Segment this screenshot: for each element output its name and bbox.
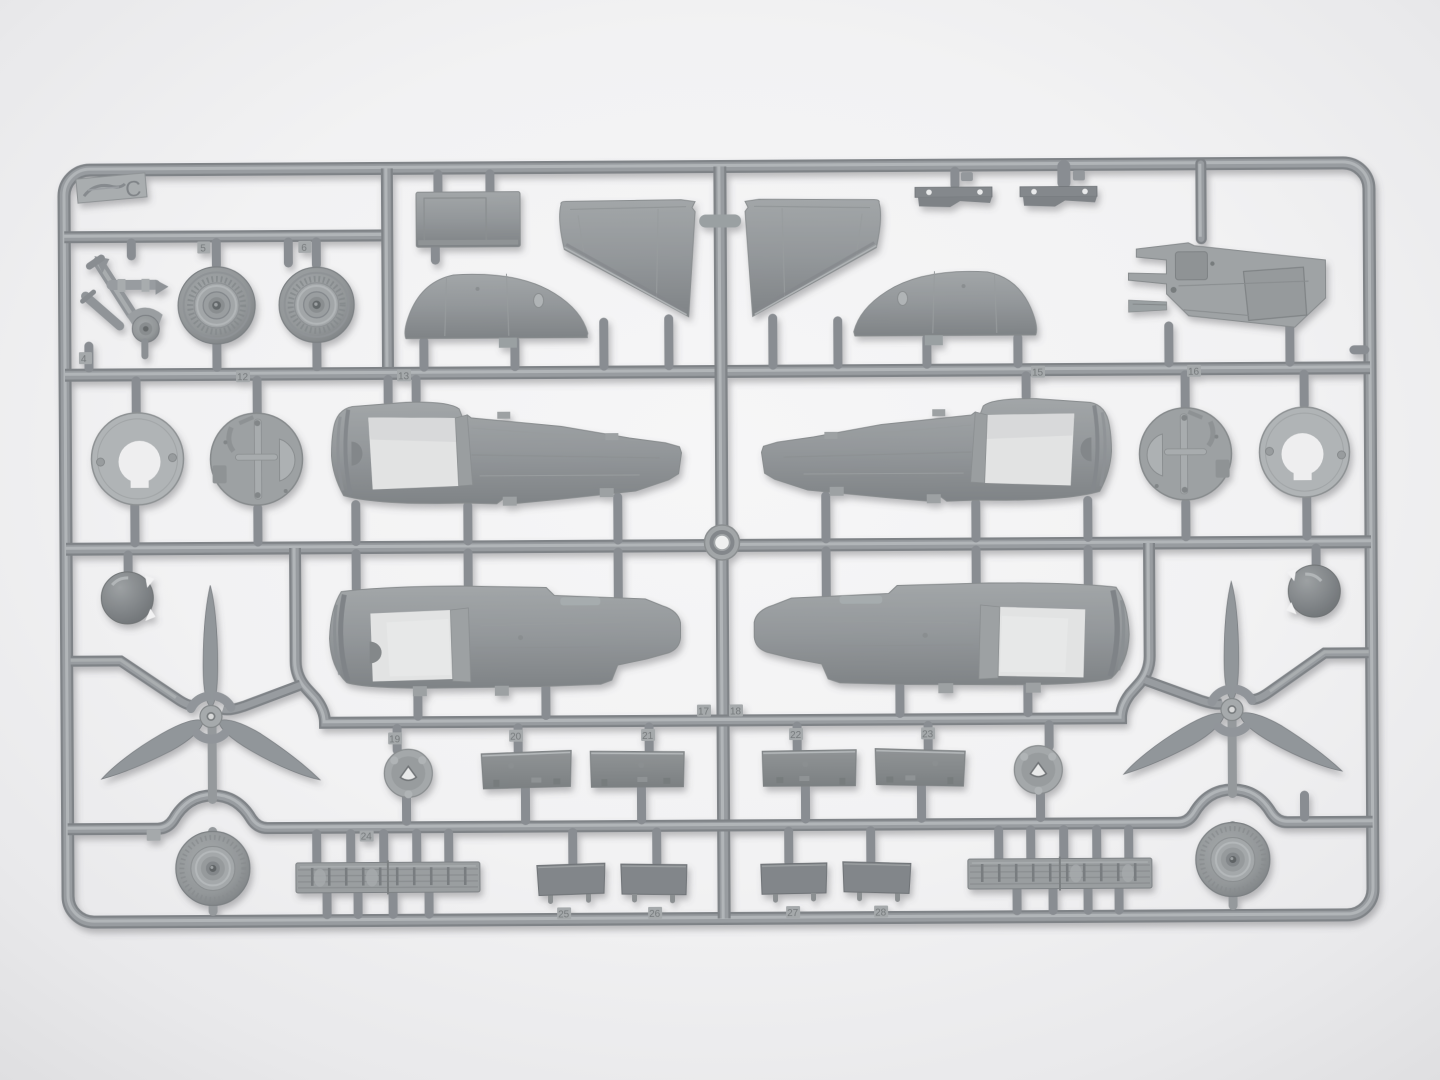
svg-text:13: 13 — [398, 371, 410, 382]
svg-text:5: 5 — [200, 243, 206, 254]
svg-text:21: 21 — [642, 731, 654, 742]
svg-text:17: 17 — [698, 707, 710, 718]
svg-text:26: 26 — [649, 909, 661, 920]
svg-text:12: 12 — [237, 372, 249, 383]
svg-text:4: 4 — [81, 354, 87, 365]
svg-text:28: 28 — [875, 908, 887, 919]
svg-text:19: 19 — [389, 734, 401, 745]
svg-text:23: 23 — [922, 729, 934, 740]
svg-text:6: 6 — [301, 243, 307, 254]
svg-text:24: 24 — [361, 832, 373, 843]
svg-text:C: C — [124, 176, 142, 202]
svg-text:25: 25 — [558, 909, 570, 920]
svg-text:16: 16 — [1188, 367, 1200, 378]
svg-text:15: 15 — [1032, 368, 1044, 379]
svg-text:20: 20 — [510, 732, 522, 743]
svg-text:22: 22 — [790, 730, 802, 741]
svg-text:27: 27 — [787, 908, 799, 919]
svg-text:18: 18 — [730, 706, 742, 717]
